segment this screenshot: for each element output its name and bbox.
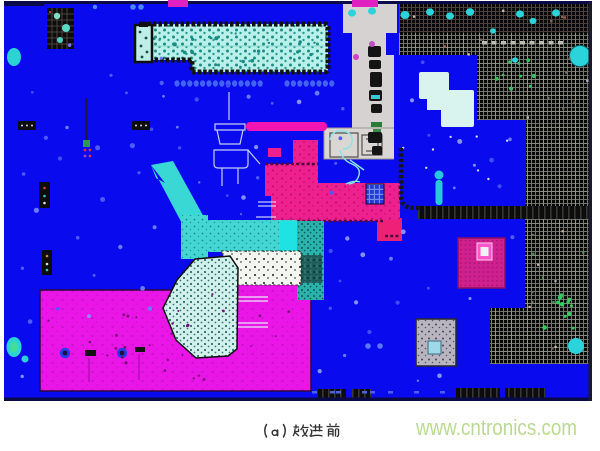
svg-text:www.cntronics.com: www.cntronics.com <box>415 415 577 440</box>
